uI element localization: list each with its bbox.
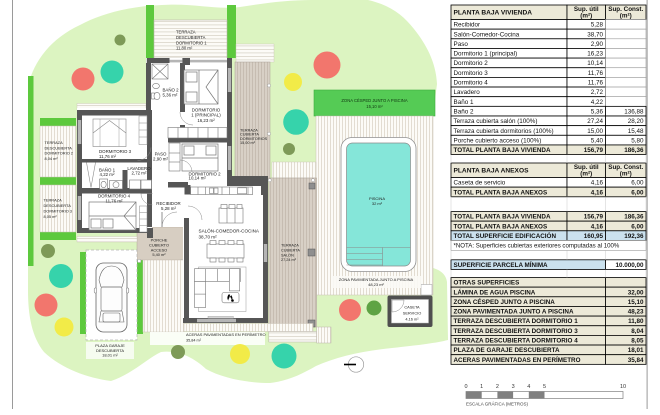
svg-text:Terraza cubierta dormitorios (: Terraza cubierta dormitorios (100%) — [454, 128, 554, 135]
svg-text:Porche cubierto acceso (100%): Porche cubierto acceso (100%) — [454, 137, 542, 144]
svg-text:2: 2 — [496, 384, 499, 390]
svg-text:18,01: 18,01 — [628, 347, 644, 354]
svg-text:Dormitorio 2: Dormitorio 2 — [454, 60, 489, 67]
svg-text:11,76 m²: 11,76 m² — [99, 154, 117, 159]
svg-text:15,48: 15,48 — [628, 128, 644, 135]
svg-text:156,79: 156,79 — [584, 147, 604, 154]
svg-text:DORMITORIO 2: DORMITORIO 2 — [45, 151, 73, 156]
svg-text:ACERAS PAVIMENTADAS EN PERÍMET: ACERAS PAVIMENTADAS EN PERÍMETRO — [186, 332, 266, 337]
svg-text:10.000,00: 10.000,00 — [615, 262, 644, 269]
svg-text:TERRAZA DESCUBIERTA DORMITORIO: TERRAZA DESCUBIERTA DORMITORIO 1 — [454, 318, 579, 325]
svg-text:*NOTA: Superficies cubiertas e: *NOTA: Superficies cubiertas exteriores … — [454, 243, 620, 250]
svg-text:PLAZA DE GARAJE DESCUBIERTA: PLAZA DE GARAJE DESCUBIERTA — [454, 347, 560, 354]
svg-text:4: 4 — [527, 384, 530, 390]
svg-text:OTRAS SUPERFICIES: OTRAS SUPERFICIES — [454, 280, 520, 287]
svg-text:1: 1 — [480, 384, 483, 390]
svg-text:DORMITORIO 3: DORMITORIO 3 — [44, 209, 72, 214]
svg-text:5,28 m²: 5,28 m² — [161, 206, 176, 211]
svg-text:4,22 m²: 4,22 m² — [100, 172, 115, 177]
svg-text:3: 3 — [512, 384, 515, 390]
svg-text:16,23: 16,23 — [587, 51, 603, 58]
svg-text:156,79: 156,79 — [584, 214, 604, 221]
svg-text:11,76 m²: 11,76 m² — [105, 198, 123, 203]
svg-text:6,00: 6,00 — [631, 223, 644, 230]
svg-text:160,95: 160,95 — [584, 233, 604, 240]
svg-text:4,16: 4,16 — [591, 223, 604, 230]
svg-text:2,90: 2,90 — [591, 41, 604, 48]
svg-text:Terraza cubierta salón (100%): Terraza cubierta salón (100%) — [454, 118, 538, 125]
svg-text:TOTAL SUPERFICIE EDIFICACIÓN: TOTAL SUPERFICIE EDIFICACIÓN — [454, 231, 557, 240]
svg-text:10: 10 — [620, 384, 626, 390]
svg-text:11,80 m²: 11,80 m² — [176, 46, 193, 51]
svg-text:TERRAZA: TERRAZA — [176, 30, 196, 35]
svg-text:186,36: 186,36 — [624, 147, 644, 154]
svg-text:15,10: 15,10 — [628, 299, 644, 306]
svg-text:(m²): (m²) — [580, 170, 592, 177]
svg-text:32 m²: 32 m² — [372, 201, 383, 206]
svg-text:TOTAL PLANTA BAJA VIVIENDA: TOTAL PLANTA BAJA VIVIENDA — [454, 147, 551, 154]
svg-text:Dormitorio 1 (principal): Dormitorio 1 (principal) — [454, 51, 518, 58]
svg-text:Baño 2: Baño 2 — [454, 108, 474, 115]
svg-text:TOTAL PLANTA BAJA VIVIENDA: TOTAL PLANTA BAJA VIVIENDA — [454, 214, 551, 221]
svg-text:4,16 m²: 4,16 m² — [405, 317, 419, 322]
svg-text:DORMITORIO 1: DORMITORIO 1 — [176, 40, 207, 45]
svg-text:5,36 m²: 5,36 m² — [163, 92, 178, 97]
svg-text:TERRAZA DESCUBIERTA DORMITORIO: TERRAZA DESCUBIERTA DORMITORIO 3 — [454, 328, 579, 335]
svg-text:136,88: 136,88 — [624, 108, 644, 115]
svg-text:Dormitorio 3: Dormitorio 3 — [454, 70, 489, 77]
svg-text:8,05: 8,05 — [631, 338, 644, 345]
svg-text:35,84 m²: 35,84 m² — [186, 339, 202, 343]
svg-text:186,36: 186,36 — [624, 214, 644, 221]
svg-text:CUBIERTA: CUBIERTA — [281, 248, 300, 252]
svg-text:DESCUBIERTA: DESCUBIERTA — [45, 145, 73, 150]
svg-text:5,40: 5,40 — [591, 137, 604, 144]
svg-text:ZONA CÉSPED JUNTO A PISCINA: ZONA CÉSPED JUNTO A PISCINA — [454, 297, 556, 306]
svg-text:15,00: 15,00 — [587, 128, 603, 135]
svg-text:4,22: 4,22 — [591, 99, 604, 106]
svg-text:SERVICIO: SERVICIO — [403, 311, 422, 316]
svg-text:CASETA: CASETA — [404, 305, 420, 310]
svg-text:SUPERFICIE PARCELA MÍNIMA: SUPERFICIE PARCELA MÍNIMA — [454, 260, 549, 269]
svg-text:Caseta de servicio: Caseta de servicio — [454, 180, 506, 187]
svg-text:2,72: 2,72 — [591, 89, 604, 96]
svg-text:4,16: 4,16 — [591, 189, 604, 196]
svg-text:TERRAZA: TERRAZA — [45, 140, 64, 145]
svg-text:ZONA CÉSPED JUNTO A PISCINA: ZONA CÉSPED JUNTO A PISCINA — [341, 98, 407, 103]
svg-text:5,80: 5,80 — [631, 137, 644, 144]
svg-text:TOTAL PLANTA BAJA ANEXOS: TOTAL PLANTA BAJA ANEXOS — [454, 223, 548, 230]
svg-text:15,00 m²: 15,00 m² — [240, 141, 256, 145]
svg-text:6,00: 6,00 — [631, 180, 644, 187]
svg-text:ESCALA GRÁFICA (METROS): ESCALA GRÁFICA (METROS) — [466, 401, 529, 407]
svg-text:10,14 m²: 10,14 m² — [189, 176, 207, 181]
svg-text:4,16: 4,16 — [591, 180, 604, 187]
svg-text:PLANTA BAJA VIVIENDA: PLANTA BAJA VIVIENDA — [454, 10, 533, 17]
svg-text:TERRAZA DESCUBIERTA DORMITORIO: TERRAZA DESCUBIERTA DORMITORIO 4 — [454, 338, 579, 345]
svg-text:(m²): (m²) — [620, 12, 632, 19]
svg-text:10,14: 10,14 — [587, 60, 603, 67]
svg-text:PLANTA BAJA ANEXOS: PLANTA BAJA ANEXOS — [454, 168, 530, 175]
svg-text:Salón-Comedor-Cocina: Salón-Comedor-Cocina — [454, 31, 520, 38]
svg-text:192,36: 192,36 — [624, 233, 644, 240]
svg-text:Recibidor: Recibidor — [454, 22, 481, 29]
svg-text:Paso: Paso — [454, 41, 469, 48]
svg-text:Baño 1: Baño 1 — [454, 99, 474, 106]
svg-text:16,23 m²: 16,23 m² — [197, 118, 215, 123]
svg-text:0: 0 — [464, 384, 467, 390]
svg-text:SALÓN: SALÓN — [281, 252, 294, 257]
svg-text:8,05 m²: 8,05 m² — [44, 214, 58, 219]
svg-text:(m²): (m²) — [580, 12, 592, 19]
svg-text:LÁMINA DE AGUA PISCINA: LÁMINA DE AGUA PISCINA — [454, 287, 536, 296]
svg-text:28,20: 28,20 — [628, 118, 644, 125]
svg-text:2,72 m²: 2,72 m² — [132, 171, 147, 176]
svg-text:38,70: 38,70 — [587, 31, 603, 38]
svg-text:2,90 m²: 2,90 m² — [153, 157, 168, 162]
svg-text:Dormitorio 4: Dormitorio 4 — [454, 80, 489, 87]
svg-text:8,04 m²: 8,04 m² — [45, 156, 59, 161]
svg-text:6,00: 6,00 — [631, 189, 644, 196]
svg-text:18,01 m²: 18,01 m² — [102, 353, 118, 358]
svg-text:11,76: 11,76 — [588, 70, 604, 77]
svg-text:27,24: 27,24 — [587, 118, 603, 125]
svg-text:5,36: 5,36 — [591, 108, 604, 115]
svg-text:11,76: 11,76 — [588, 80, 604, 87]
svg-text:DESCUBIERTA: DESCUBIERTA — [176, 35, 206, 40]
svg-text:8,04: 8,04 — [631, 328, 644, 335]
svg-text:(m²): (m²) — [620, 170, 632, 177]
svg-text:35,84: 35,84 — [628, 357, 644, 364]
svg-text:DESCUBIERTA: DESCUBIERTA — [44, 203, 72, 208]
svg-text:SALÓN-COMEDOR-COCINA: SALÓN-COMEDOR-COCINA — [199, 228, 260, 234]
svg-text:32,00: 32,00 — [628, 289, 644, 296]
svg-text:TERRAZA: TERRAZA — [44, 198, 63, 203]
svg-text:ACERAS PAVIMENTADAS EN PERÍMET: ACERAS PAVIMENTADAS EN PERÍMETRO — [454, 355, 581, 364]
svg-text:TOTAL PLANTA BAJA ANEXOS: TOTAL PLANTA BAJA ANEXOS — [454, 189, 548, 196]
svg-text:Lavadero: Lavadero — [454, 89, 481, 96]
svg-text:38,70 m²: 38,70 m² — [199, 235, 218, 240]
svg-text:27,24 m²: 27,24 m² — [281, 258, 297, 262]
svg-text:TERRAZA: TERRAZA — [281, 244, 299, 248]
svg-text:48,23 m²: 48,23 m² — [368, 282, 384, 287]
svg-text:11,80: 11,80 — [628, 318, 644, 325]
svg-text:ZONA PAVIMENTADA JUNTO A PISCI: ZONA PAVIMENTADA JUNTO A PISCINA — [454, 309, 574, 316]
svg-text:5,40 m²: 5,40 m² — [152, 252, 166, 257]
svg-text:15,10 m²: 15,10 m² — [366, 104, 383, 109]
svg-text:48,23: 48,23 — [628, 309, 644, 316]
svg-text:5: 5 — [543, 384, 546, 390]
svg-text:5,28: 5,28 — [591, 22, 604, 29]
